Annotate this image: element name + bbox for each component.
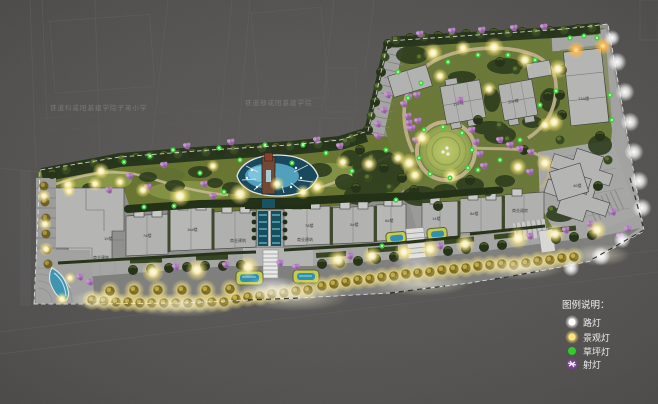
svg-text:13A楼: 13A楼 [578,95,589,101]
svg-text:8#楼: 8#楼 [470,210,478,216]
svg-text:铁道部咸阳基建学院: 铁道部咸阳基建学院 [245,98,313,107]
svg-text:14楼: 14楼 [432,215,440,221]
svg-text:19楼: 19楼 [104,235,112,241]
svg-text:图例说明：: 图例说明： [562,299,610,311]
svg-text:商业裙房: 商业裙房 [512,207,528,213]
svg-text:78楼: 78楼 [305,222,313,228]
svg-text:射灯: 射灯 [583,359,601,370]
svg-text:铁道科咸阳基建学院子弟小学: 铁道科咸阳基建学院子弟小学 [50,103,148,112]
svg-text:46楼: 46楼 [573,182,581,188]
svg-text:商业建筑: 商业建筑 [297,236,313,242]
svg-text:路灯: 路灯 [583,317,601,328]
svg-text:7#楼: 7#楼 [143,232,151,238]
svg-text:景观灯: 景观灯 [583,333,610,343]
svg-text:商业建筑: 商业建筑 [230,237,246,243]
svg-text:5#楼: 5#楼 [350,221,358,227]
svg-text:6#楼: 6#楼 [385,217,393,223]
svg-text:16#楼: 16#楼 [187,226,198,232]
svg-text:草坪灯: 草坪灯 [583,346,610,357]
